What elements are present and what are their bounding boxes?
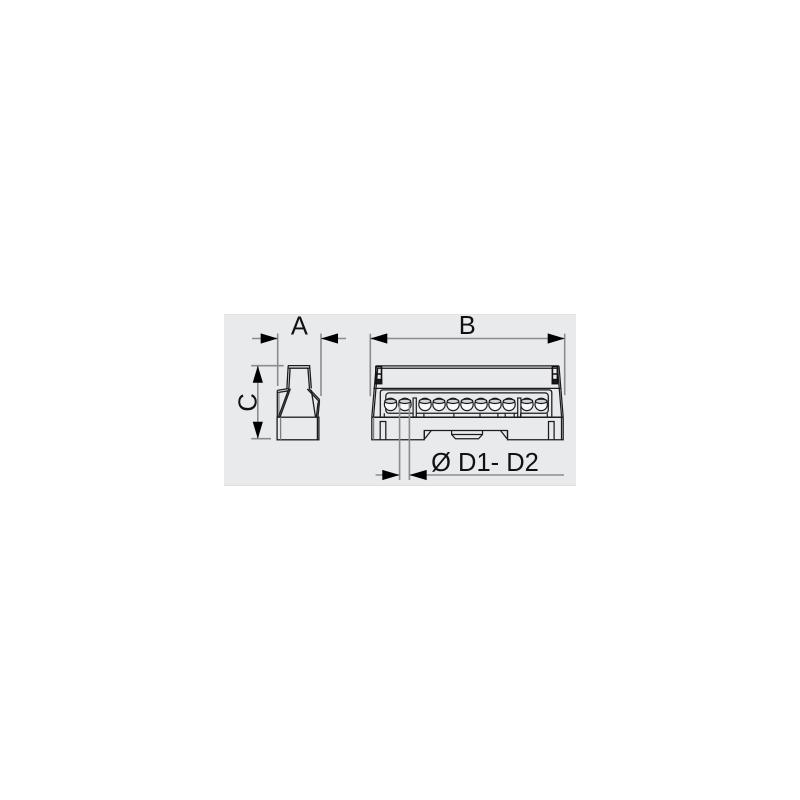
svg-text:B: B	[459, 314, 476, 340]
svg-text:Ø D1- D2: Ø D1- D2	[431, 449, 539, 477]
svg-text:A: A	[291, 314, 308, 340]
svg-text:C: C	[234, 393, 262, 411]
